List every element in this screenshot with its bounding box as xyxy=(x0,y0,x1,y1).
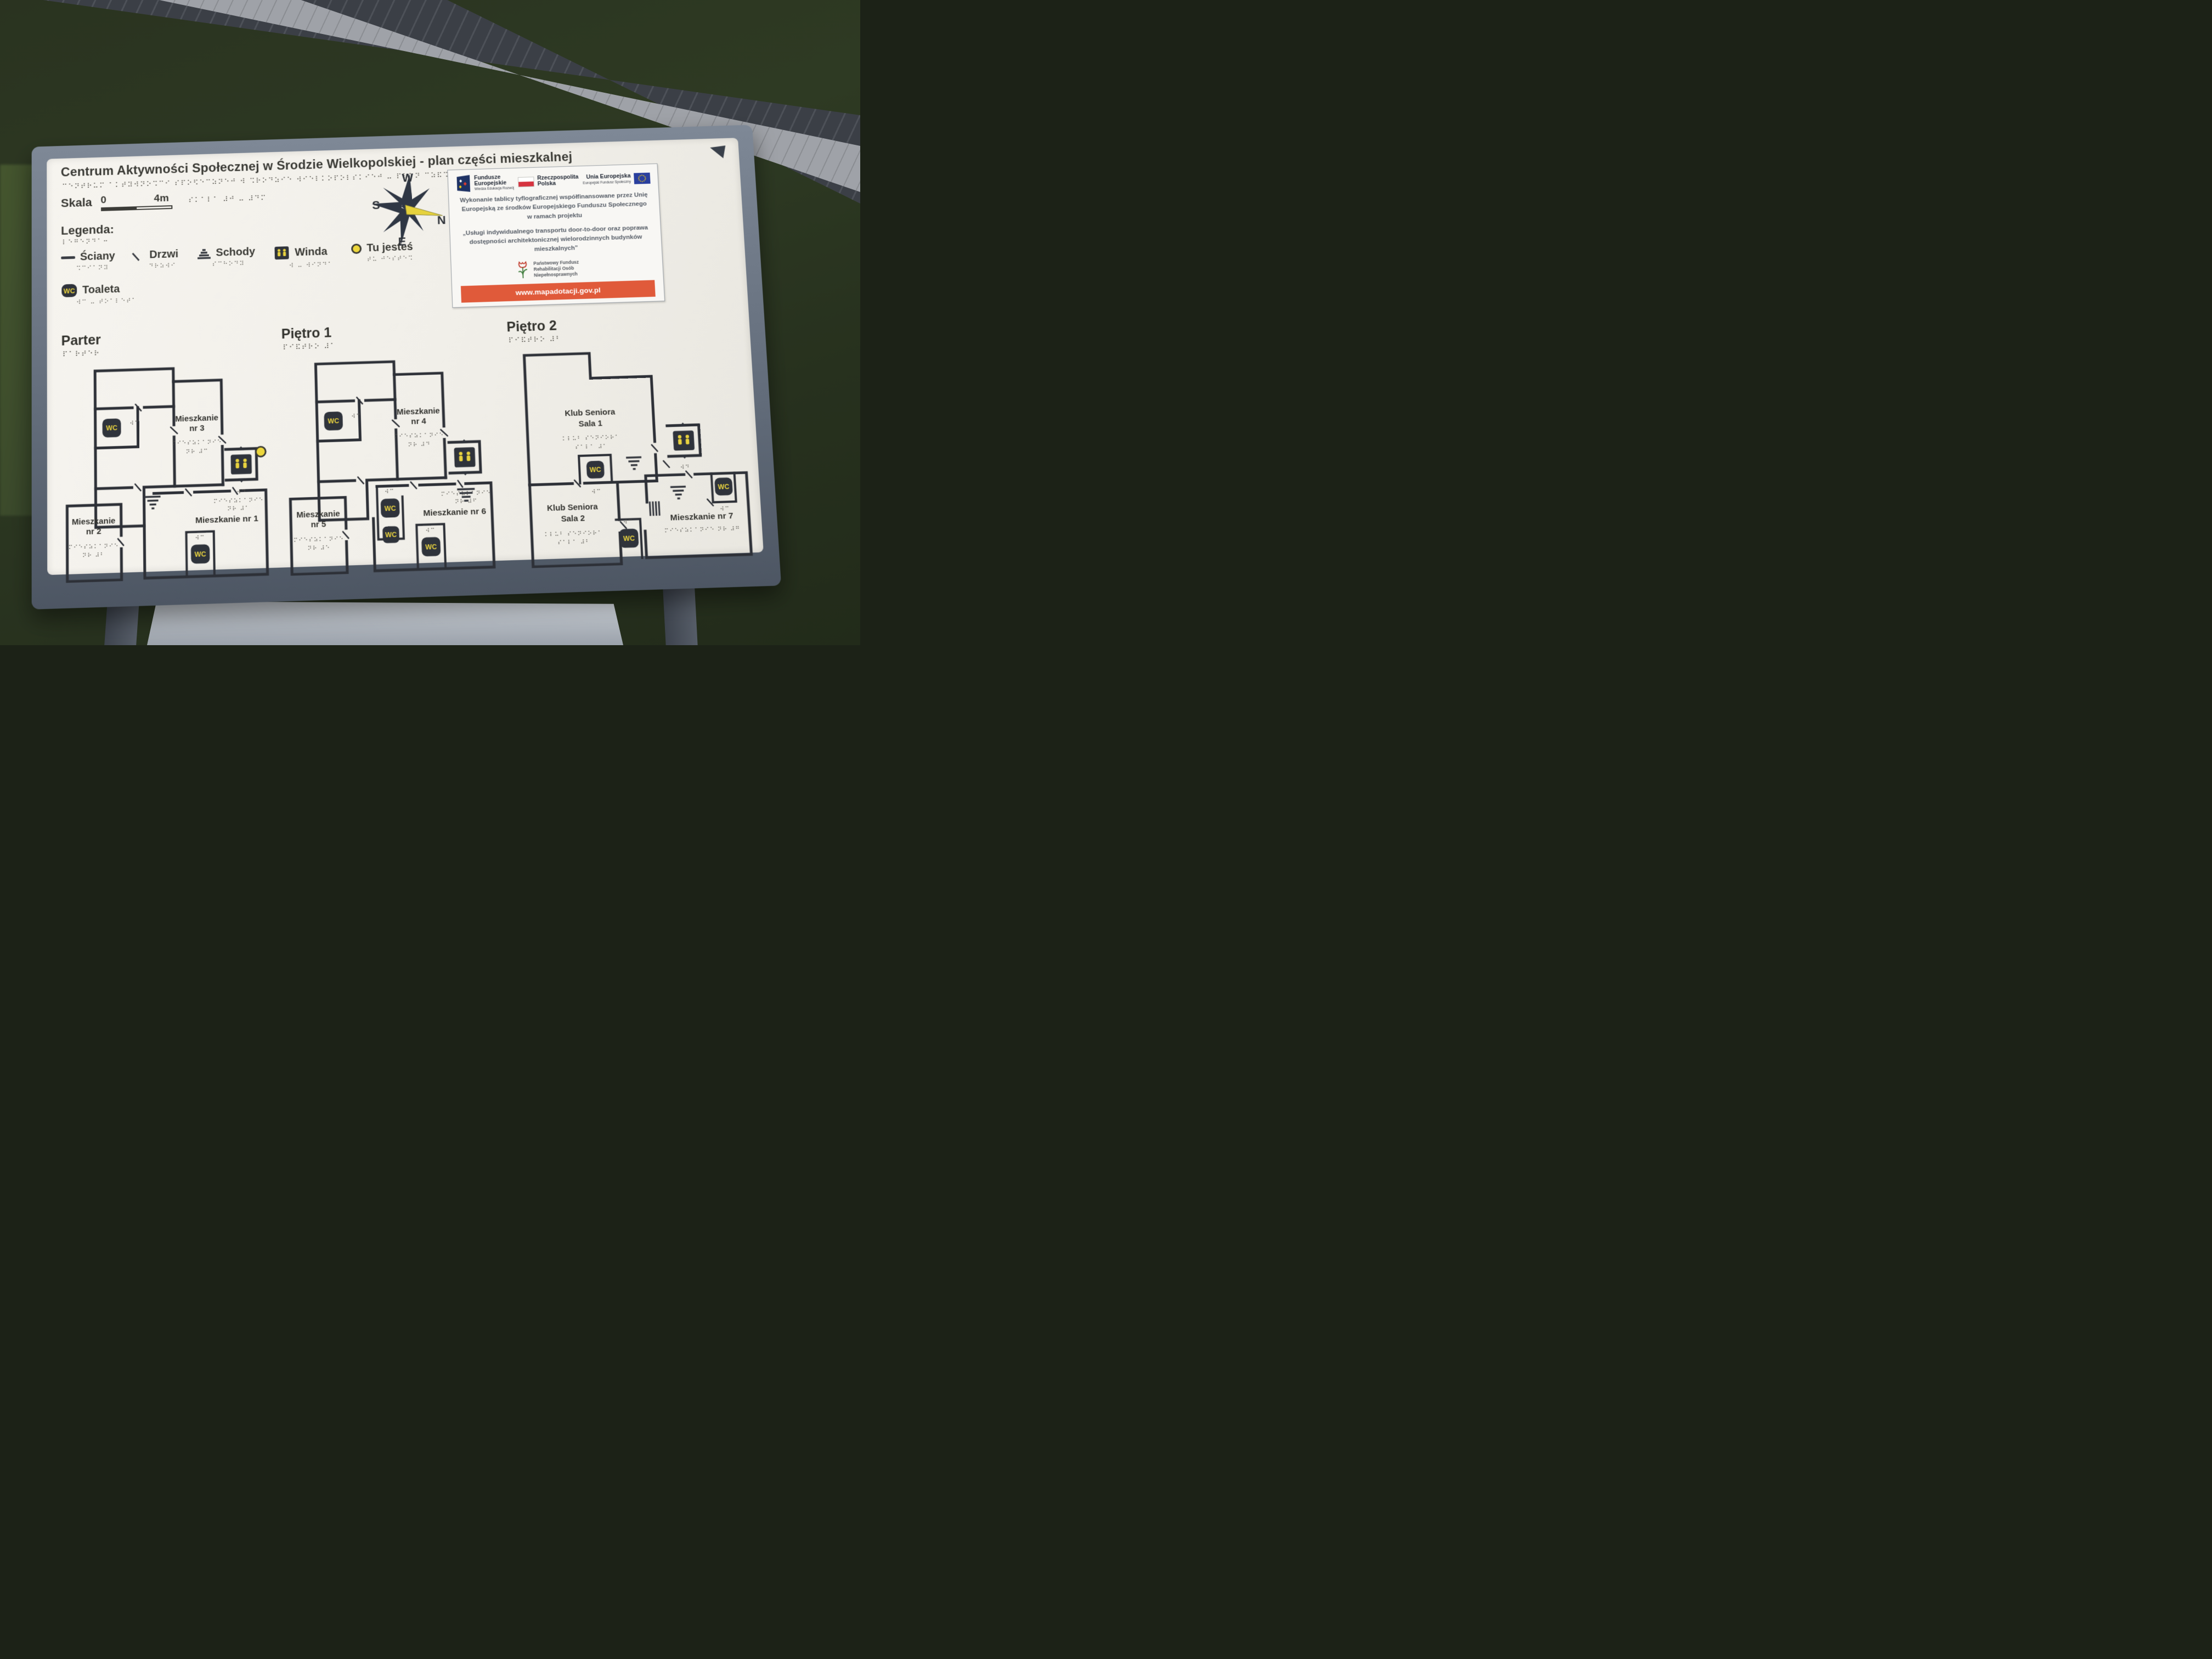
svg-text:⠺⠉: ⠺⠉ xyxy=(425,527,436,534)
map-panel: Centrum Aktywności Społecznej w Środzie … xyxy=(47,138,764,575)
scale-segment-light xyxy=(137,205,172,210)
svg-text:WC: WC xyxy=(590,466,602,474)
svg-text:WC: WC xyxy=(328,417,339,425)
eu-url-bar: www.mapadotacji.gov.pl xyxy=(461,280,656,302)
room-label: Mieszkanie nr 6 xyxy=(423,506,486,518)
legend-item-walls: Ściany ⠩⠉⠊⠁⠝⠽ xyxy=(61,250,115,273)
svg-text:WC: WC xyxy=(64,287,75,295)
room-label: Sala 2 xyxy=(561,514,585,524)
elevator-badge xyxy=(230,446,252,483)
wc-badge: WC xyxy=(191,544,210,564)
corner-triangle-mark xyxy=(709,145,726,159)
wc-badge: WC xyxy=(586,461,605,479)
svg-text:⠍⠊⠑⠎⠵⠅⠁⠝⠊⠑: ⠍⠊⠑⠎⠵⠅⠁⠝⠊⠑ xyxy=(172,439,222,447)
svg-text:⠺⠉: ⠺⠉ xyxy=(195,534,205,541)
svg-text:WC: WC xyxy=(385,531,397,539)
svg-text:⠅⠇⠥⠃ ⠎⠑⠝⠊⠕⠗⠁: ⠅⠇⠥⠃ ⠎⠑⠝⠊⠕⠗⠁ xyxy=(544,529,603,538)
floor-plan-pietro-2: ⠺⠙ WC ⠺⠉ WC ⠺⠉ WC xyxy=(507,342,757,569)
svg-text:⠺⠉: ⠺⠉ xyxy=(351,413,362,420)
svg-text:⠝⠗ ⠼⠃: ⠝⠗ ⠼⠃ xyxy=(82,552,105,560)
svg-text:⠍⠊⠑⠎⠵⠅⠁⠝⠊⠑: ⠍⠊⠑⠎⠵⠅⠁⠝⠊⠑ xyxy=(294,535,345,544)
elevator-badge xyxy=(673,422,695,459)
compass-n: N xyxy=(437,213,447,227)
legend: Legenda: ⠇⠑⠛⠑⠝⠙⠁⠒ Ściany ⠩⠉⠊⠁⠝⠽ Drzwi ⠙⠗… xyxy=(61,213,415,307)
scale-zero: 0 xyxy=(100,195,106,206)
compass-w: W xyxy=(402,171,414,184)
legend-item-toilet: WC Toaleta ⠺⠉ ⠤ ⠞⠕⠁⠇⠑⠞⠁ xyxy=(61,281,137,306)
fe-flag-icon xyxy=(455,175,471,193)
svg-text:⠍⠊⠑⠎⠵⠅⠁⠝⠊⠑: ⠍⠊⠑⠎⠵⠅⠁⠝⠊⠑ xyxy=(213,497,264,505)
floor-parter: Parter ⠏⠁⠗⠞⠑⠗ xyxy=(61,327,272,583)
eu-funding-box: Fundusze Europejskie Wiedza Edukacja Roz… xyxy=(447,163,665,308)
fundusze-europejskie-logo: Fundusze Europejskie Wiedza Edukacja Roz… xyxy=(455,173,514,192)
rzeczpospolita-polska-logo: Rzeczpospolita Polska xyxy=(518,174,579,188)
svg-text:⠺⠉: ⠺⠉ xyxy=(591,489,602,496)
room-label: Mieszkanie nr 1 xyxy=(195,513,258,525)
scale-label: Skala xyxy=(61,195,92,210)
floor-pietro-1: Piętro 1 ⠏⠊⠯⠞⠗⠕ ⠼⠁ xyxy=(281,320,503,575)
svg-text:⠅⠇⠥⠃ ⠎⠑⠝⠊⠕⠗⠁: ⠅⠇⠥⠃ ⠎⠑⠝⠊⠕⠗⠁ xyxy=(562,435,620,443)
svg-text:⠝⠗ ⠼⠑: ⠝⠗ ⠼⠑ xyxy=(308,545,331,552)
compass-rose: W S N E xyxy=(366,169,450,251)
poland-flag-icon xyxy=(518,177,534,187)
scale-row: Skala 0 4m ⠎⠅⠁⠇⠁ ⠼⠚ ⠤ ⠼⠙⠍ xyxy=(61,190,267,212)
room-label: nr 3 xyxy=(189,424,205,433)
room-label: Mieszkanie xyxy=(175,414,218,424)
room-label: nr 5 xyxy=(311,520,326,529)
eu-text-financing: Wykonanie tablicy tyflograficznej współf… xyxy=(459,190,650,224)
room-label: nr 2 xyxy=(86,527,101,537)
room-label: Mieszkanie nr 7 xyxy=(670,511,733,522)
room-label: Mieszkanie xyxy=(296,510,340,520)
svg-text:⠝⠗ ⠼⠁: ⠝⠗ ⠼⠁ xyxy=(227,505,250,513)
svg-text:⠎⠁⠇⠁ ⠼⠃: ⠎⠁⠇⠁ ⠼⠃ xyxy=(557,539,591,546)
unia-europejska-logo: Unia Europejska Europejski Fundusz Społe… xyxy=(583,172,651,185)
svg-text:⠺⠙: ⠺⠙ xyxy=(680,464,690,471)
outdoor-photo-scene: Centrum Aktywności Społecznej w Środzie … xyxy=(0,0,860,645)
wc-badge: WC xyxy=(103,419,121,438)
scale-four: 4m xyxy=(154,193,169,204)
svg-text:WC: WC xyxy=(718,483,730,491)
you-are-here-icon xyxy=(351,244,362,254)
svg-text:⠝⠗ ⠼⠉: ⠝⠗ ⠼⠉ xyxy=(186,448,209,456)
wc-badge: WC xyxy=(324,411,343,431)
legend-item-stairs: Schody ⠎⠉⠓⠕⠙⠽ xyxy=(197,246,256,268)
room-label: Mieszkanie xyxy=(397,407,440,417)
legend-item-doors: Drzwi ⠙⠗⠵⠺⠊ xyxy=(133,248,178,270)
scale-braille: ⠎⠅⠁⠇⠁ ⠼⠚ ⠤ ⠼⠙⠍ xyxy=(188,194,267,205)
eu-flag-icon xyxy=(634,172,651,184)
pfron-logo: Państwowy Fundusz Rehabilitacji Osób Nie… xyxy=(459,257,655,281)
svg-text:⠎⠁⠇⠁ ⠼⠁: ⠎⠁⠇⠁ ⠼⠁ xyxy=(575,443,608,451)
legend-item-elevator: Winda ⠺ ⠤ ⠺⠊⠝⠙⠁ xyxy=(273,244,333,270)
scale-bar: 0 4m xyxy=(100,193,172,211)
room-label: nr 4 xyxy=(411,417,427,426)
wc-icon: WC xyxy=(61,284,77,298)
svg-text:⠝⠗ ⠼⠙: ⠝⠗ ⠼⠙ xyxy=(408,441,431,449)
door-icon xyxy=(133,250,144,261)
room-label: Klub Seniora xyxy=(547,503,599,513)
wc-badge: WC xyxy=(619,528,639,548)
wc-badge: WC xyxy=(382,526,399,543)
svg-text:WC: WC xyxy=(195,550,206,558)
room-label: Klub Seniora xyxy=(565,408,616,418)
wc-badge: WC xyxy=(381,498,400,517)
floor-plans-row: Parter ⠏⠁⠗⠞⠑⠗ xyxy=(61,313,753,583)
compass-s: S xyxy=(372,198,380,212)
eu-text-project: „Usługi indywidualnego transportu door-t… xyxy=(460,223,652,257)
room-label: Mieszkanie xyxy=(72,517,115,527)
wc-badge: WC xyxy=(421,537,441,557)
wc-badge: WC xyxy=(714,477,733,495)
eu-logos-row: Fundusze Europejskie Wiedza Edukacja Roz… xyxy=(455,170,650,193)
elevator-icon xyxy=(273,245,290,261)
elevator-badge xyxy=(454,439,476,476)
wall-icon xyxy=(61,256,75,259)
tactile-map-board: Centrum Aktywności Społecznej w Środzie … xyxy=(32,125,781,609)
svg-text:⠺⠉: ⠺⠉ xyxy=(129,420,139,427)
svg-text:⠺⠙: ⠺⠙ xyxy=(236,489,247,496)
pfron-tulip-icon xyxy=(516,261,529,279)
svg-text:⠍⠊⠑⠎⠵⠅⠁⠝⠊⠑: ⠍⠊⠑⠎⠵⠅⠁⠝⠊⠑ xyxy=(441,490,491,498)
floor-plan-parter: WC ⠺⠉ ⠺⠙ Mieszkanie nr 3 ⠍ xyxy=(61,357,272,583)
svg-text:⠍⠊⠑⠎⠵⠅⠁⠝⠊⠑: ⠍⠊⠑⠎⠵⠅⠁⠝⠊⠑ xyxy=(394,432,444,441)
floor-plan-pietro-1: WC ⠺⠉ Mieszkanie nr 4 ⠍⠊⠑⠎⠵⠅⠁⠝⠊⠑ xyxy=(282,350,502,576)
svg-text:⠍⠊⠑⠎⠵⠅⠁⠝⠊⠑: ⠍⠊⠑⠎⠵⠅⠁⠝⠊⠑ xyxy=(69,543,119,551)
you-are-here-marker xyxy=(256,447,266,457)
svg-text:⠍⠊⠑⠎⠵⠅⠁⠝⠊⠑ ⠝⠗ ⠼⠛: ⠍⠊⠑⠎⠵⠅⠁⠝⠊⠑ ⠝⠗ ⠼⠛ xyxy=(664,525,741,534)
svg-text:WC: WC xyxy=(623,534,635,543)
svg-text:WC: WC xyxy=(106,424,117,432)
svg-text:⠺⠉: ⠺⠉ xyxy=(385,488,395,495)
compass-e: E xyxy=(398,235,406,249)
stairs-icon xyxy=(197,247,211,259)
board-stand-panel xyxy=(147,601,623,645)
room-label: Sala 1 xyxy=(578,419,602,429)
svg-text:WC: WC xyxy=(385,504,396,512)
scale-segment-dark xyxy=(101,206,137,211)
floor-pietro-2: Piętro 2 ⠏⠊⠯⠞⠗⠕ ⠼⠃ xyxy=(506,312,758,568)
svg-text:⠝⠗ ⠼⠋: ⠝⠗ ⠼⠋ xyxy=(455,498,478,506)
svg-text:WC: WC xyxy=(425,543,437,551)
svg-text:⠺⠉: ⠺⠉ xyxy=(623,518,634,526)
